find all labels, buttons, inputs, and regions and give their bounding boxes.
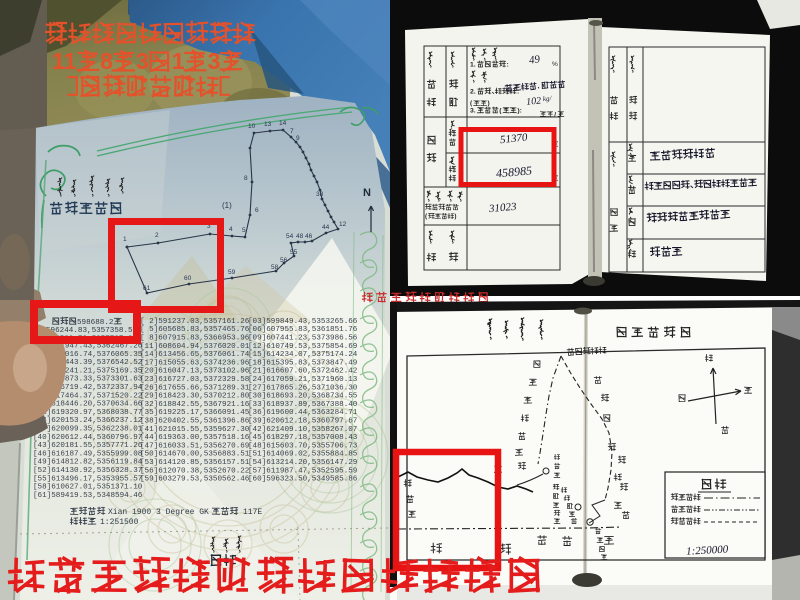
svg-text:13: 13 [264,121,272,128]
svg-text:[11]608604.94,5376020.01: [11]608604.94,5376020.01 [140,343,250,351]
svg-text:/: / [554,111,556,118]
svg-text:[20]616047.13,5373102.96: [20]616047.13,5373102.96 [140,368,250,376]
svg-text:[55]613496.17,5353955.57: [55]613496.17,5353955.57 [33,475,142,483]
svg-text:38: 38 [316,191,324,198]
svg-text:[38]620402.55,5361396.86: [38]620402.55,5361396.86 [140,418,250,426]
svg-text:46: 46 [305,233,313,240]
svg-text:):: ): [517,107,522,114]
svg-text:1:251500: 1:251500 [100,518,139,527]
svg-text:31023: 31023 [488,201,518,215]
svg-text:1: 1 [172,48,185,74]
svg-text:[23]616727.03,5372329.58: [23]616727.03,5372329.58 [140,376,250,384]
svg-text:[60]596323.50,5349585.86: [60]596323.50,5349585.86 [248,476,358,484]
svg-text:[14]613456.65,5376061.74: [14]613456.65,5376061.74 [140,351,250,359]
svg-text:[49]614812.82,5356119.84: [49]614812.82,5356119.84 [33,459,143,467]
svg-text:12: 12 [339,221,347,228]
svg-text:102: 102 [526,95,542,108]
svg-text:44: 44 [322,224,330,231]
svg-text:3.: 3. [470,107,476,114]
svg-text:[50]614670.00,5356883.51: [50]614670.00,5356883.51 [140,451,250,459]
svg-text:[42]621409.10,5358267.07: [42]621409.10,5358267.07 [248,426,357,434]
svg-text:4: 4 [229,226,233,233]
svg-text:[39]620612.18,5360797.67: [39]620612.18,5360797.67 [248,418,357,426]
svg-text:[09]607441.23,5373986.56: [09]607441.23,5373986.56 [248,335,358,343]
svg-text::: : [507,61,509,68]
svg-text:54: 54 [286,233,294,240]
svg-text:55: 55 [290,249,298,256]
svg-text:[27]617865.26,5371036.30: [27]617865.26,5371036.30 [248,384,358,392]
svg-text:9: 9 [296,135,300,142]
svg-text:2: 2 [155,232,159,239]
svg-text:[58]610627.01,5351371.10: [58]610627.01,5351371.10 [33,484,143,492]
svg-text:1:250000: 1:250000 [686,544,729,558]
svg-text:N: N [363,187,371,199]
svg-text:60: 60 [184,275,192,282]
svg-text:59: 59 [228,269,236,276]
svg-text:[56]612070.38,5352670.22: [56]612070.38,5352670.22 [140,467,250,475]
svg-text:10: 10 [248,123,256,130]
svg-text:[03]599849.43,5353265.66: [03]599849.43,5353265.66 [248,318,358,326]
svg-text::: : [517,88,519,95]
svg-text:[17]615055.63,5374236.96: [17]615055.63,5374236.96 [140,359,250,367]
svg-text:): ) [488,100,490,107]
svg-text:[43]620181.55,5357771.26: [43]620181.55,5357771.26 [33,442,143,450]
svg-text:[ 8]607915.83,5366953.96: [ 8]607915.83,5366953.96 [140,335,250,343]
svg-text:3: 3 [136,48,149,74]
svg-text:): ) [454,213,456,220]
svg-text:56: 56 [280,257,288,264]
svg-text:49: 49 [528,53,541,66]
svg-text:[30]618693.20,5368734.55: [30]618693.20,5368734.55 [248,393,358,401]
svg-text:[53]614120.85,5356157.51: [53]614120.85,5356157.51 [140,459,250,467]
svg-text:[40]620612.44,5360796.97: [40]620612.44,5360796.97 [33,434,142,442]
svg-text:[24]617059.21,5371960.13: [24]617059.21,5371960.13 [248,376,358,384]
svg-text:[29]618423.30,5370212.80: [29]618423.30,5370212.80 [140,393,250,401]
svg-text:117E: 117E [243,508,262,517]
svg-text:[12]610749.53,5375854.69: [12]610749.53,5375854.69 [248,343,358,351]
svg-text:[ 5]605685.83,5357465.76: [ 5]605685.83,5357465.76 [140,326,250,334]
svg-text:11: 11 [52,48,77,74]
svg-text:[48]615603.70,5355706.73: [48]615603.70,5355706.73 [248,442,358,450]
svg-text:[31]619320.97,5368038.77: [31]619320.97,5368038.77 [33,409,142,417]
svg-text:[37]620099.35,5362238.01: [37]620099.35,5362238.01 [33,426,143,434]
svg-text:3: 3 [208,48,221,74]
svg-text:6: 6 [255,207,259,214]
svg-text:8: 8 [100,48,113,74]
svg-text:[47]616033.51,5356270.69: [47]616033.51,5356270.69 [140,442,250,450]
svg-text:Xian 1900 3 Degree GK: Xian 1900 3 Degree GK [108,508,209,517]
svg-text:[15]614234.07,5375174.24: [15]614234.07,5375174.24 [248,351,358,359]
svg-text:[18]615395.83,5373847.49: [18]615395.83,5373847.49 [248,359,358,367]
svg-text:[06]607955.83,5361851.76: [06]607955.83,5361851.76 [248,326,358,334]
svg-text:[59]603279.53,5350562.46: [59]603279.53,5350562.46 [140,476,250,484]
svg-text:58: 58 [271,264,279,271]
svg-text:[45]618297.18,5357008.43: [45]618297.18,5357008.43 [248,434,358,442]
svg-text:1: 1 [123,236,127,243]
svg-text:1.: 1. [470,61,476,68]
svg-text:[52]614130.92,5356328.37: [52]614130.92,5356328.37 [33,467,142,475]
svg-text:598688.2: 598688.2 [77,319,114,327]
svg-text:[32]618842.55,5367921.16: [32]618842.55,5367921.16 [140,401,250,409]
svg-text:[57]611987.47,5352595.59: [57]611987.47,5352595.59 [248,467,358,475]
svg-text:596244.83,5357358.56: 596244.83,5357358.56 [46,327,138,335]
svg-text:61: 61 [143,285,151,292]
svg-text:[ 2]591237.03,5357161.26: [ 2]591237.03,5357161.26 [140,318,250,326]
svg-text:[54]613214.20,5356147.29: [54]613214.20,5356147.29 [248,459,358,467]
svg-text:[46]616187.49,5355999.08: [46]616187.49,5355999.08 [33,450,143,458]
svg-text:[26]617655.66,5371289.31: [26]617655.66,5371289.31 [140,384,250,392]
svg-text:[61]589419.53,5348594.46: [61]589419.53,5348594.46 [33,492,143,500]
svg-text:8: 8 [244,175,248,182]
svg-text:[34]620153.24,5366237.12: [34]620153.24,5366237.12 [33,417,143,425]
svg-text:[33]618937.89,5367388.40: [33]618937.89,5367388.40 [248,401,358,409]
svg-text:[44]619363.00,5357518.16: [44]619363.00,5357518.16 [140,434,250,442]
svg-text:7: 7 [290,128,294,135]
svg-text:5: 5 [242,227,246,234]
svg-text:48: 48 [296,233,304,240]
svg-text:%: % [552,61,558,68]
svg-text:2.: 2. [470,88,476,95]
svg-text:[35]619225.17,5366091.45: [35]619225.17,5366091.45 [140,409,250,417]
svg-text:[51]614069.02,5355884.85: [51]614069.02,5355884.85 [248,451,358,459]
svg-text:14: 14 [279,120,287,127]
svg-text:[21]616607.60,5372462.42: [21]616607.60,5372462.42 [248,368,358,376]
svg-text:[41]621015.55,5359627.30: [41]621015.55,5359627.30 [140,426,250,434]
svg-text:[36]619600.44,5363284.71: [36]619600.44,5363284.71 [248,409,358,417]
svg-text:(1): (1) [222,201,232,210]
